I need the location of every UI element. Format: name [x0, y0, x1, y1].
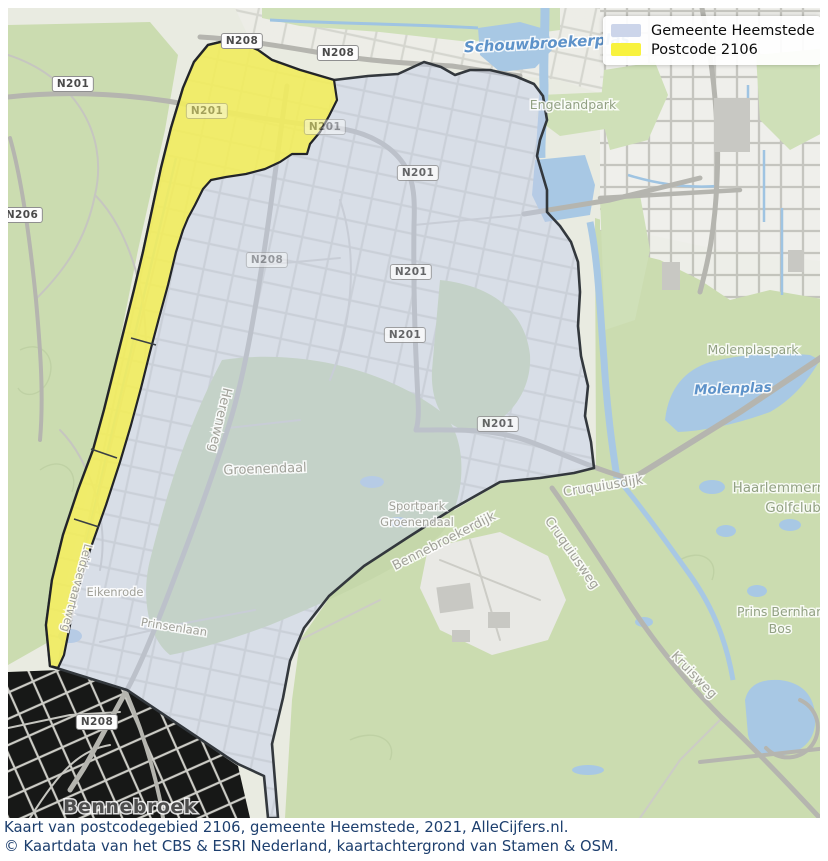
road-shield-n201: N201 — [390, 264, 432, 280]
legend-swatch-gemeente — [611, 24, 641, 37]
caption-line-2: © Kaartdata van het CBS & ESRI Nederland… — [4, 838, 618, 857]
map-figure: Schouwbroekerplas Molenplas Engelandpark… — [0, 0, 828, 861]
legend-label-gemeente: Gemeente Heemstede — [651, 23, 815, 39]
label-bennebroek: Bennebroek — [63, 796, 197, 818]
road-shield-n201: N201 — [384, 327, 426, 343]
road-shield-n208: N208 — [76, 714, 118, 730]
legend-swatch-postcode — [611, 43, 641, 56]
road-shield-n201: N201 — [477, 416, 519, 432]
road-shield-n208-faded: N208 — [246, 252, 288, 268]
label-haarlemmermeerse-golfclub: Haarlemmermeerse — [733, 480, 820, 496]
road-shield-n208: N208 — [221, 33, 263, 49]
label-sportpark-groenendaal: Groenendaal — [380, 515, 454, 529]
road-shield-n206: N206 — [8, 207, 43, 223]
road-shield-n201: N201 — [397, 165, 439, 181]
map-caption: Kaart van postcodegebied 2106, gemeente … — [4, 819, 618, 856]
label-golfclub: Golfclub — [765, 500, 820, 516]
road-shield-n201-faded: N201 — [186, 103, 228, 119]
map-legend: Gemeente Heemstede Postcode 2106 — [603, 16, 820, 65]
label-molenplaspark: Molenplaspark — [707, 342, 799, 357]
label-molenplas: Molenplas — [694, 380, 772, 399]
road-shield-n208: N208 — [317, 45, 359, 61]
label-sportpark: Sportpark — [389, 499, 446, 513]
map-canvas[interactable]: Schouwbroekerplas Molenplas Engelandpark… — [8, 8, 820, 818]
caption-line-1: Kaart van postcodegebied 2106, gemeente … — [4, 819, 618, 838]
road-shield-n201-faded: N201 — [304, 119, 346, 135]
label-engelandpark: Engelandpark — [530, 97, 617, 112]
map-art: Schouwbroekerplas Molenplas Engelandpark… — [8, 8, 820, 818]
road-shield-n201: N201 — [52, 76, 94, 92]
label-eikenrode: Eikenrode — [87, 585, 144, 599]
legend-label-postcode: Postcode 2106 — [651, 42, 758, 58]
label-prins-bernhard: Prins Bernhard — [737, 604, 820, 619]
label-bos: Bos — [769, 621, 792, 636]
legend-item-gemeente: Gemeente Heemstede — [611, 21, 813, 40]
legend-item-postcode: Postcode 2106 — [611, 40, 813, 59]
label-groenendaal: Groenendaal — [223, 461, 307, 479]
